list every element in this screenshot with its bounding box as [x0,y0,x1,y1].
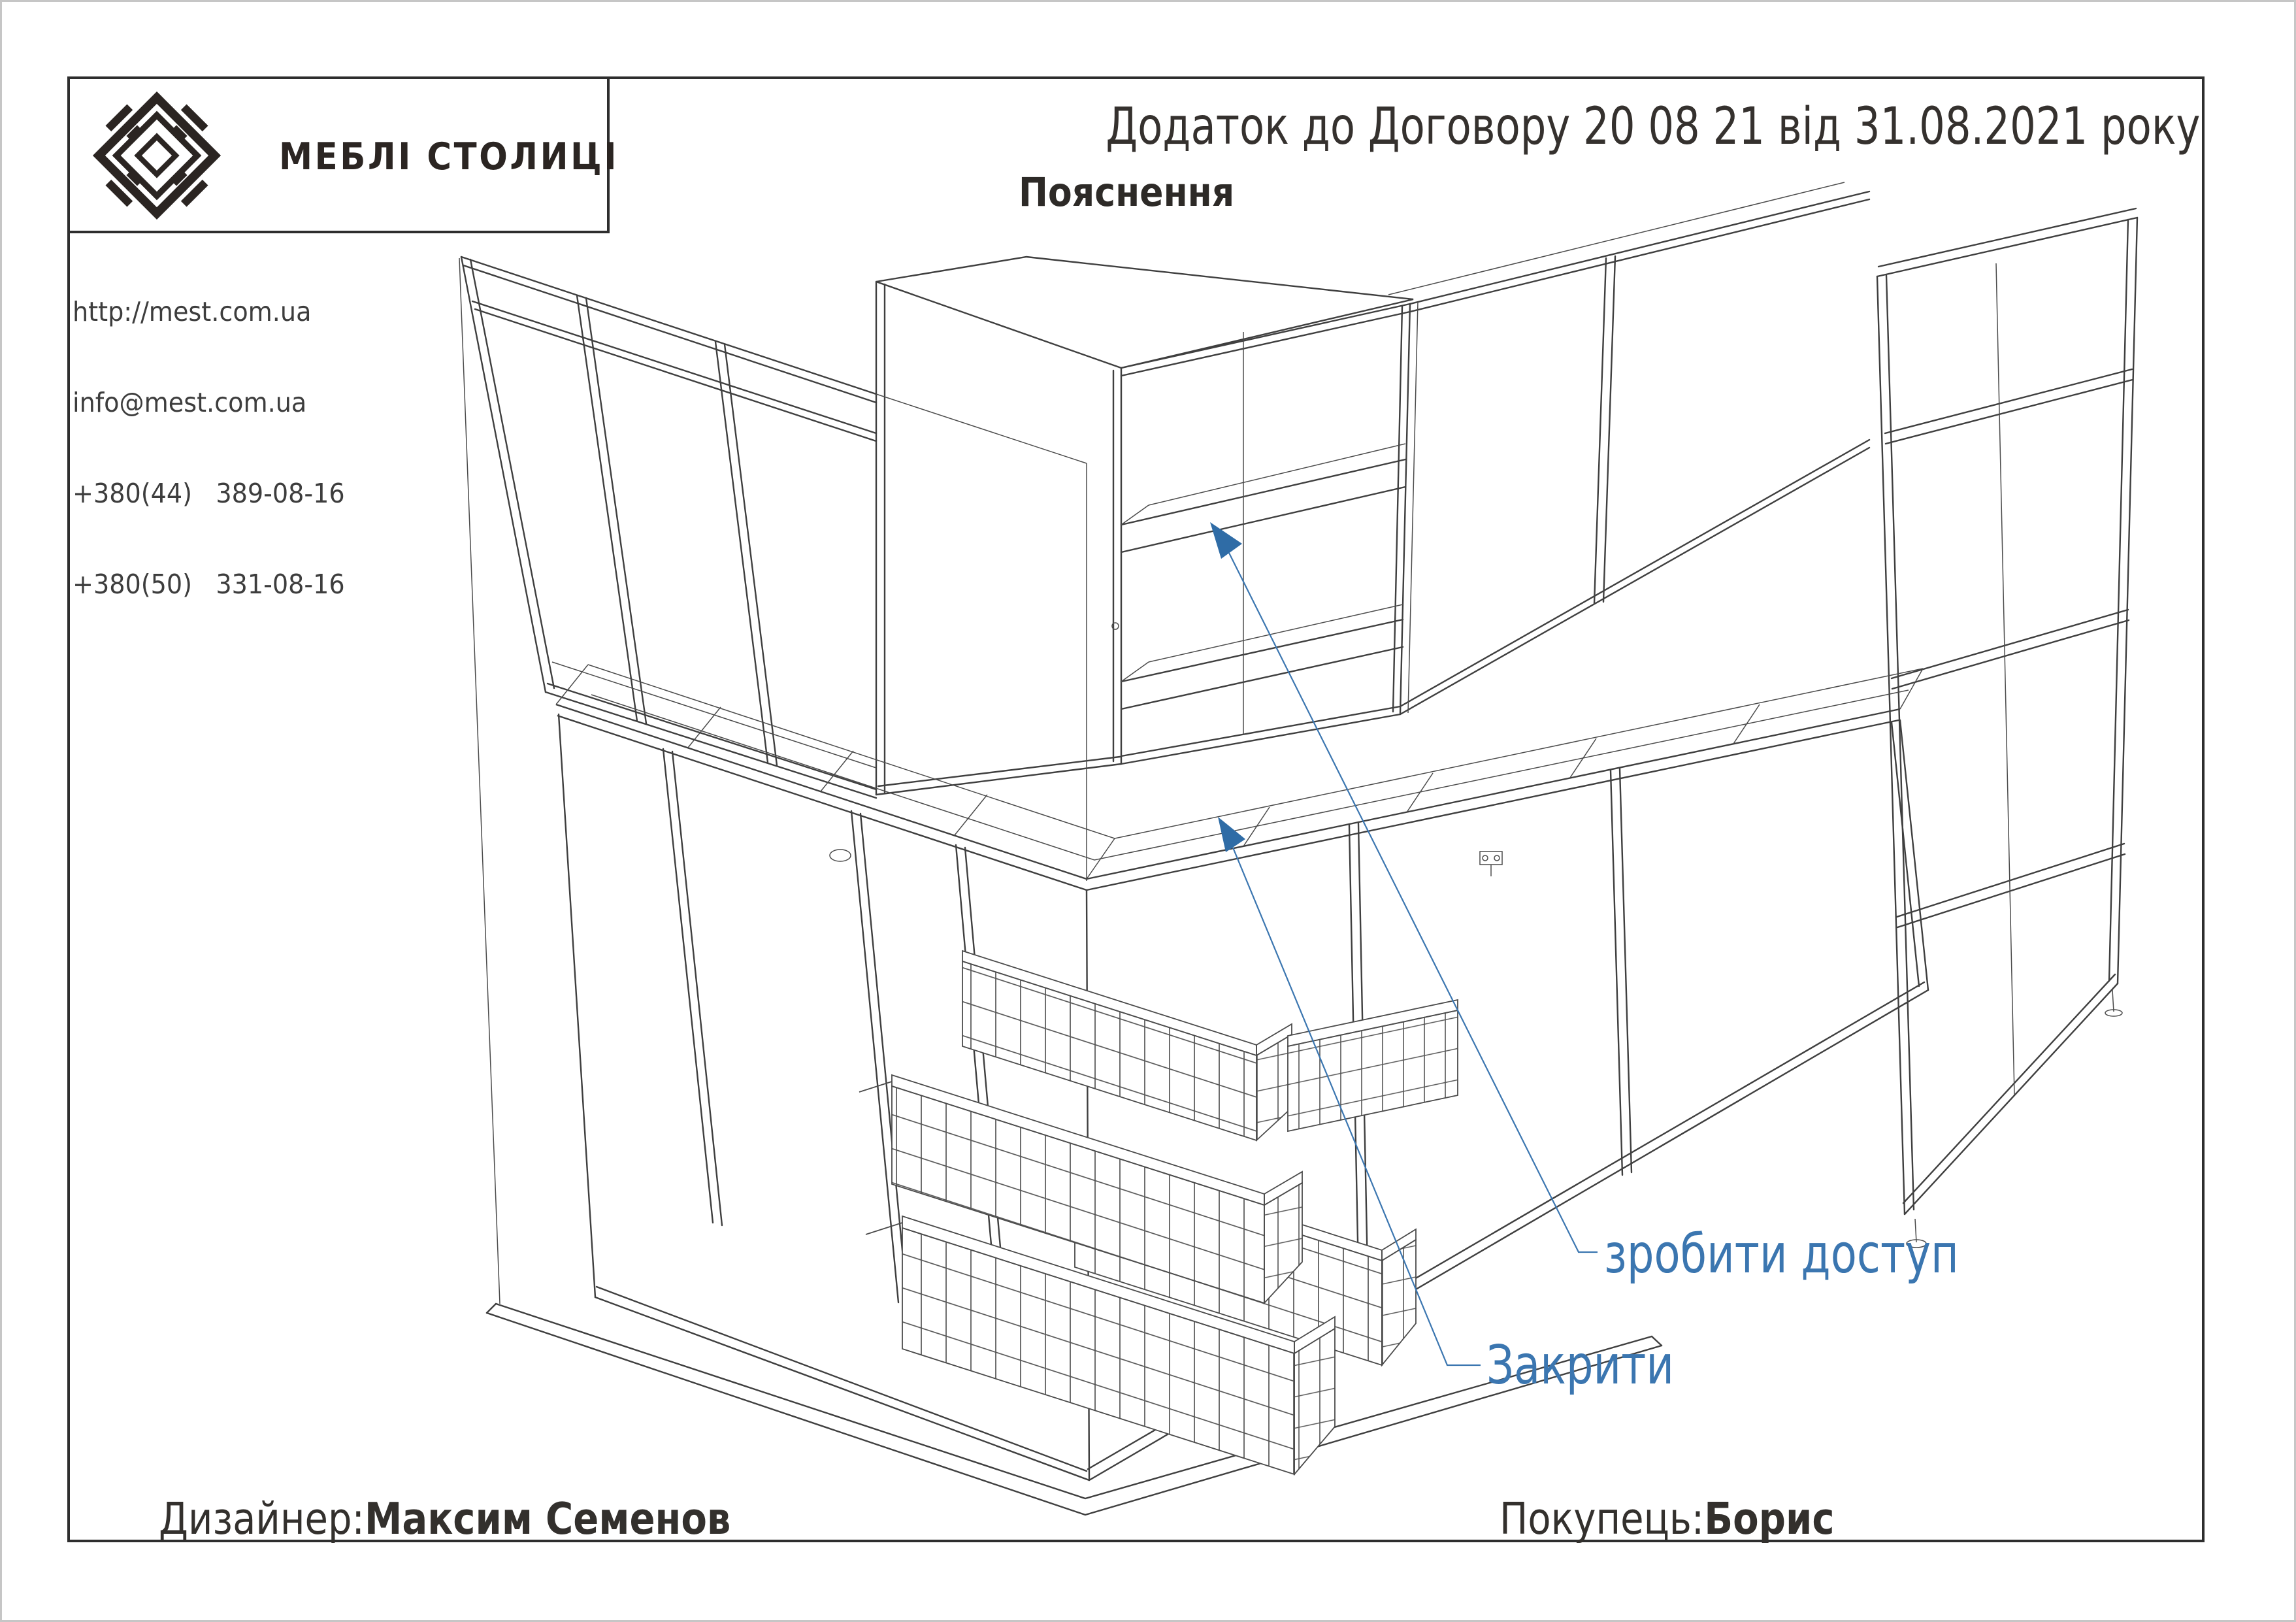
customer-label: Покупець: [1500,1493,1704,1544]
document-page: МЕБЛІ СТОЛИЦІ http://mest.com.ua info@me… [0,0,2296,1622]
counter-frame-lines [556,665,1923,890]
designer-row: Дизайнер:Максим Семенов [159,1493,730,1544]
customer-name: Борис [1704,1493,1834,1544]
wire-basket [1288,1000,1458,1131]
customer-row: Покупець:Борис [1500,1493,1834,1544]
wire-baskets [859,951,1458,1474]
designer-label: Дизайнер: [159,1493,365,1544]
annotation-close: Закрити [1486,1334,1674,1397]
leader-line-access [1229,553,1598,1252]
hidden-detail-lines [459,182,2122,1304]
kitchen-wireframe-drawing: зробити доступ Закрити [2,2,2296,1622]
annotation-access: зробити доступ [1604,1223,1959,1285]
designer-name: Максим Семенов [365,1493,730,1544]
wire-basket [962,951,1292,1140]
